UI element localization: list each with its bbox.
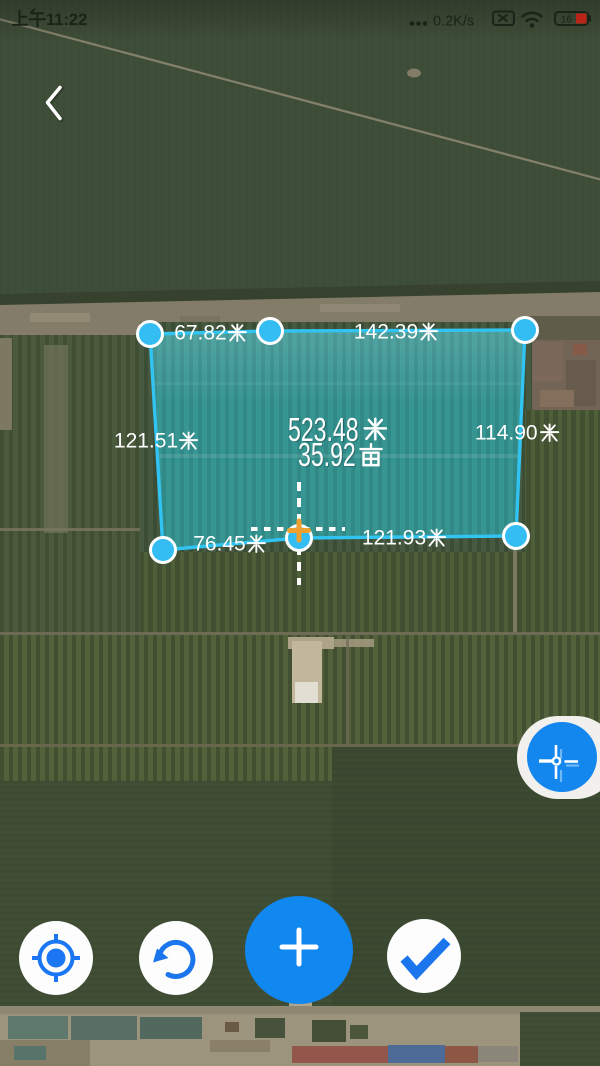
svg-text:76.45: 76.45 xyxy=(193,532,246,555)
svg-text:121.93: 121.93 xyxy=(362,526,426,549)
svg-text:11:22: 11:22 xyxy=(46,11,87,29)
svg-text:16: 16 xyxy=(561,15,573,26)
svg-text:67.82: 67.82 xyxy=(174,321,227,344)
svg-text:0.2K/s: 0.2K/s xyxy=(433,14,474,30)
svg-text:35.92: 35.92 xyxy=(298,437,356,474)
svg-text:142.39: 142.39 xyxy=(354,320,418,343)
svg-text:121.51: 121.51 xyxy=(114,429,178,452)
svg-text:114.90: 114.90 xyxy=(475,421,538,444)
